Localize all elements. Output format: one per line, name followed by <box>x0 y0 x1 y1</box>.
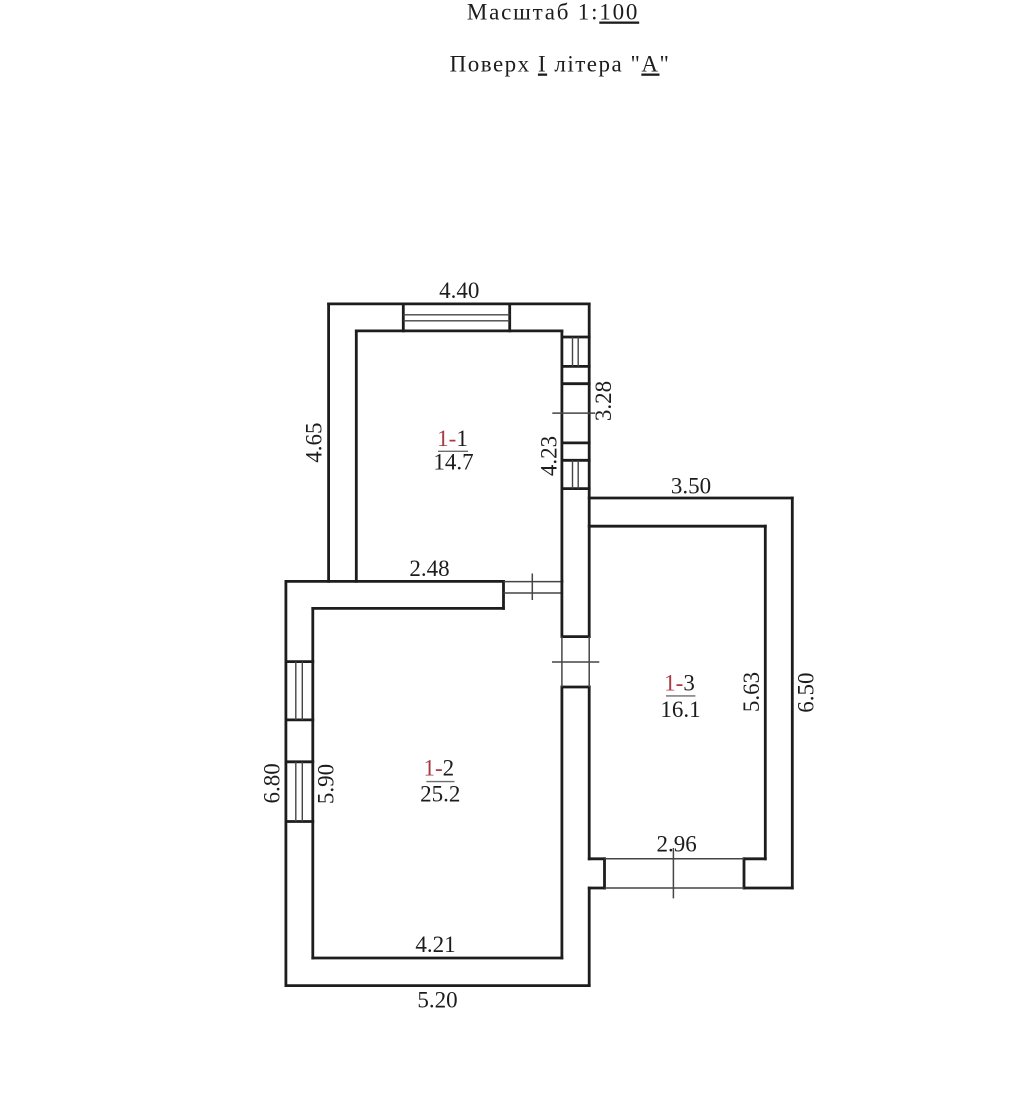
svg-text:1-2: 1-2 <box>423 756 454 781</box>
svg-text:5.63: 5.63 <box>739 672 764 712</box>
svg-text:4.40: 4.40 <box>439 278 479 303</box>
svg-text:4.65: 4.65 <box>302 422 327 462</box>
svg-text:4.21: 4.21 <box>415 932 455 957</box>
svg-text:1-3: 1-3 <box>664 671 695 696</box>
svg-text:Масштаб 1:100: Масштаб 1:100 <box>467 0 639 25</box>
svg-text:6.50: 6.50 <box>794 672 819 712</box>
svg-text:3.28: 3.28 <box>591 381 616 421</box>
svg-text:25.2: 25.2 <box>420 782 460 807</box>
svg-text:3.50: 3.50 <box>671 474 711 499</box>
svg-text:6.80: 6.80 <box>259 763 284 803</box>
svg-text:2.96: 2.96 <box>656 832 696 857</box>
svg-text:4.23: 4.23 <box>537 436 562 476</box>
svg-text:1-1: 1-1 <box>437 426 468 451</box>
svg-text:5.90: 5.90 <box>313 764 338 804</box>
svg-text:Поверх І літера "А": Поверх І літера "А" <box>450 52 671 77</box>
svg-text:16.1: 16.1 <box>660 697 700 722</box>
svg-text:2.48: 2.48 <box>409 556 449 581</box>
svg-text:5.20: 5.20 <box>417 988 457 1013</box>
svg-text:14.7: 14.7 <box>433 450 473 475</box>
